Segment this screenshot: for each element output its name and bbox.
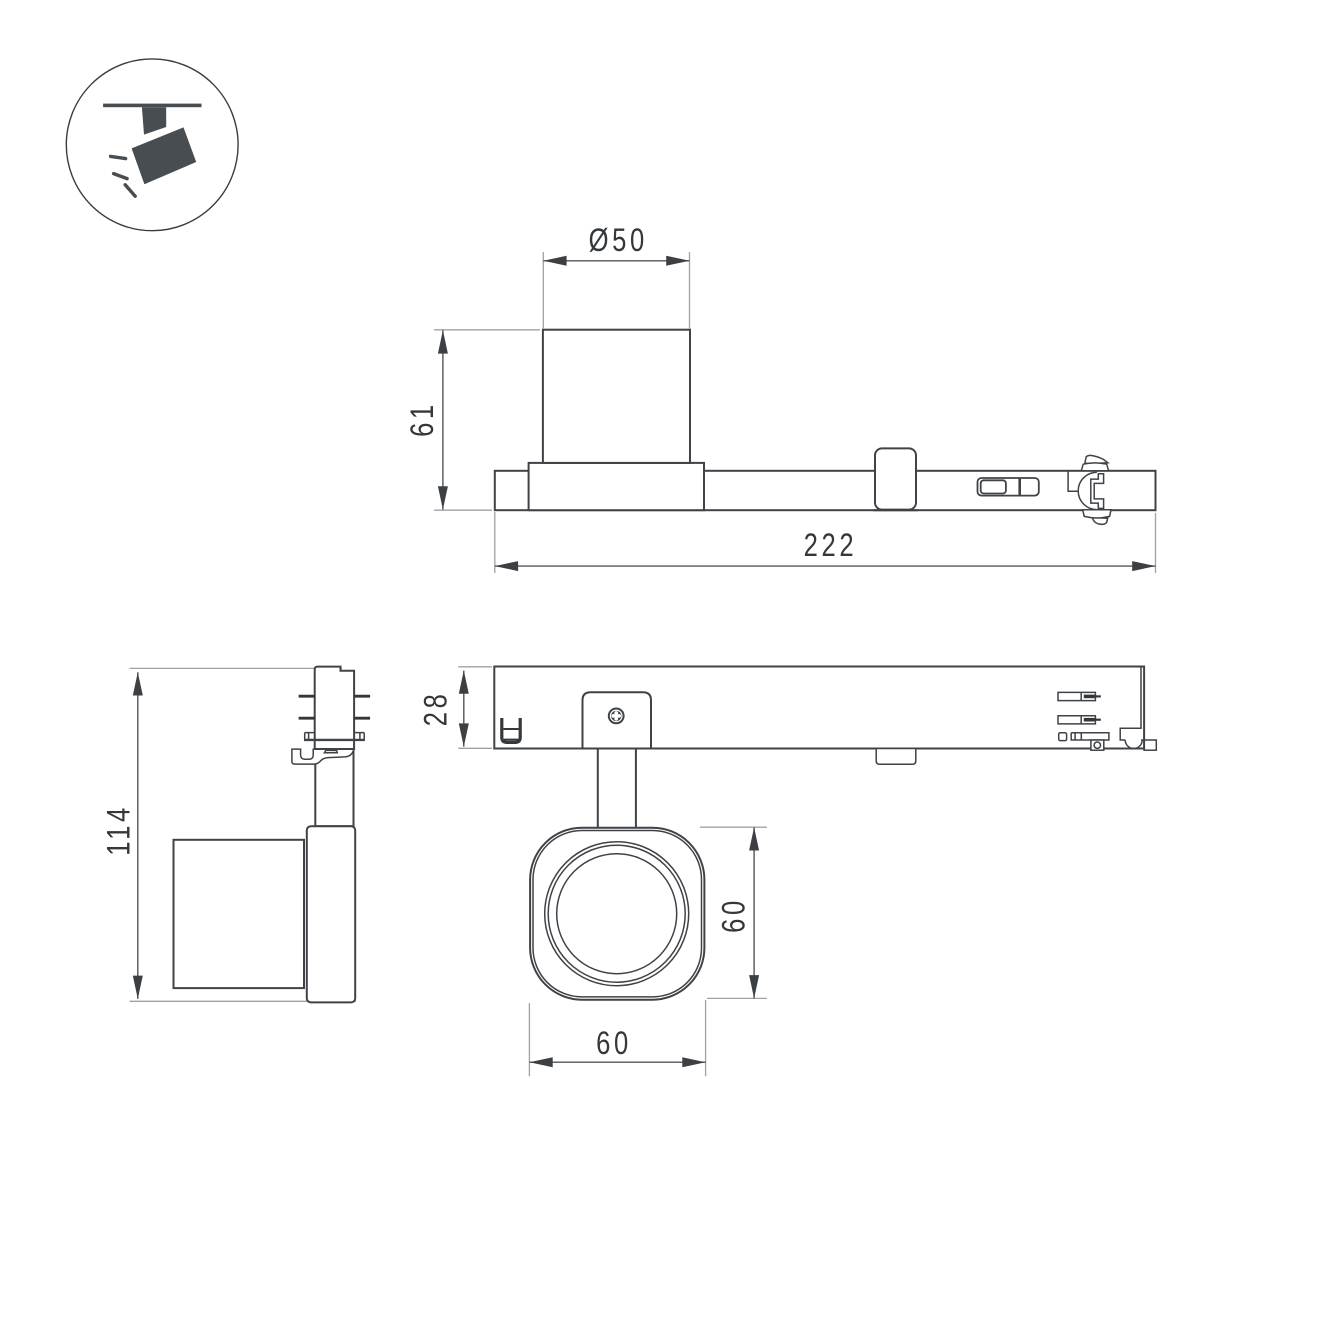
svg-text:61: 61: [405, 401, 440, 437]
svg-text:Ø50: Ø50: [589, 223, 648, 258]
svg-text:222: 222: [804, 528, 858, 563]
svg-text:60: 60: [717, 897, 752, 933]
svg-text:60: 60: [596, 1026, 632, 1061]
svg-text:114: 114: [102, 804, 137, 856]
svg-text:28: 28: [419, 691, 454, 727]
